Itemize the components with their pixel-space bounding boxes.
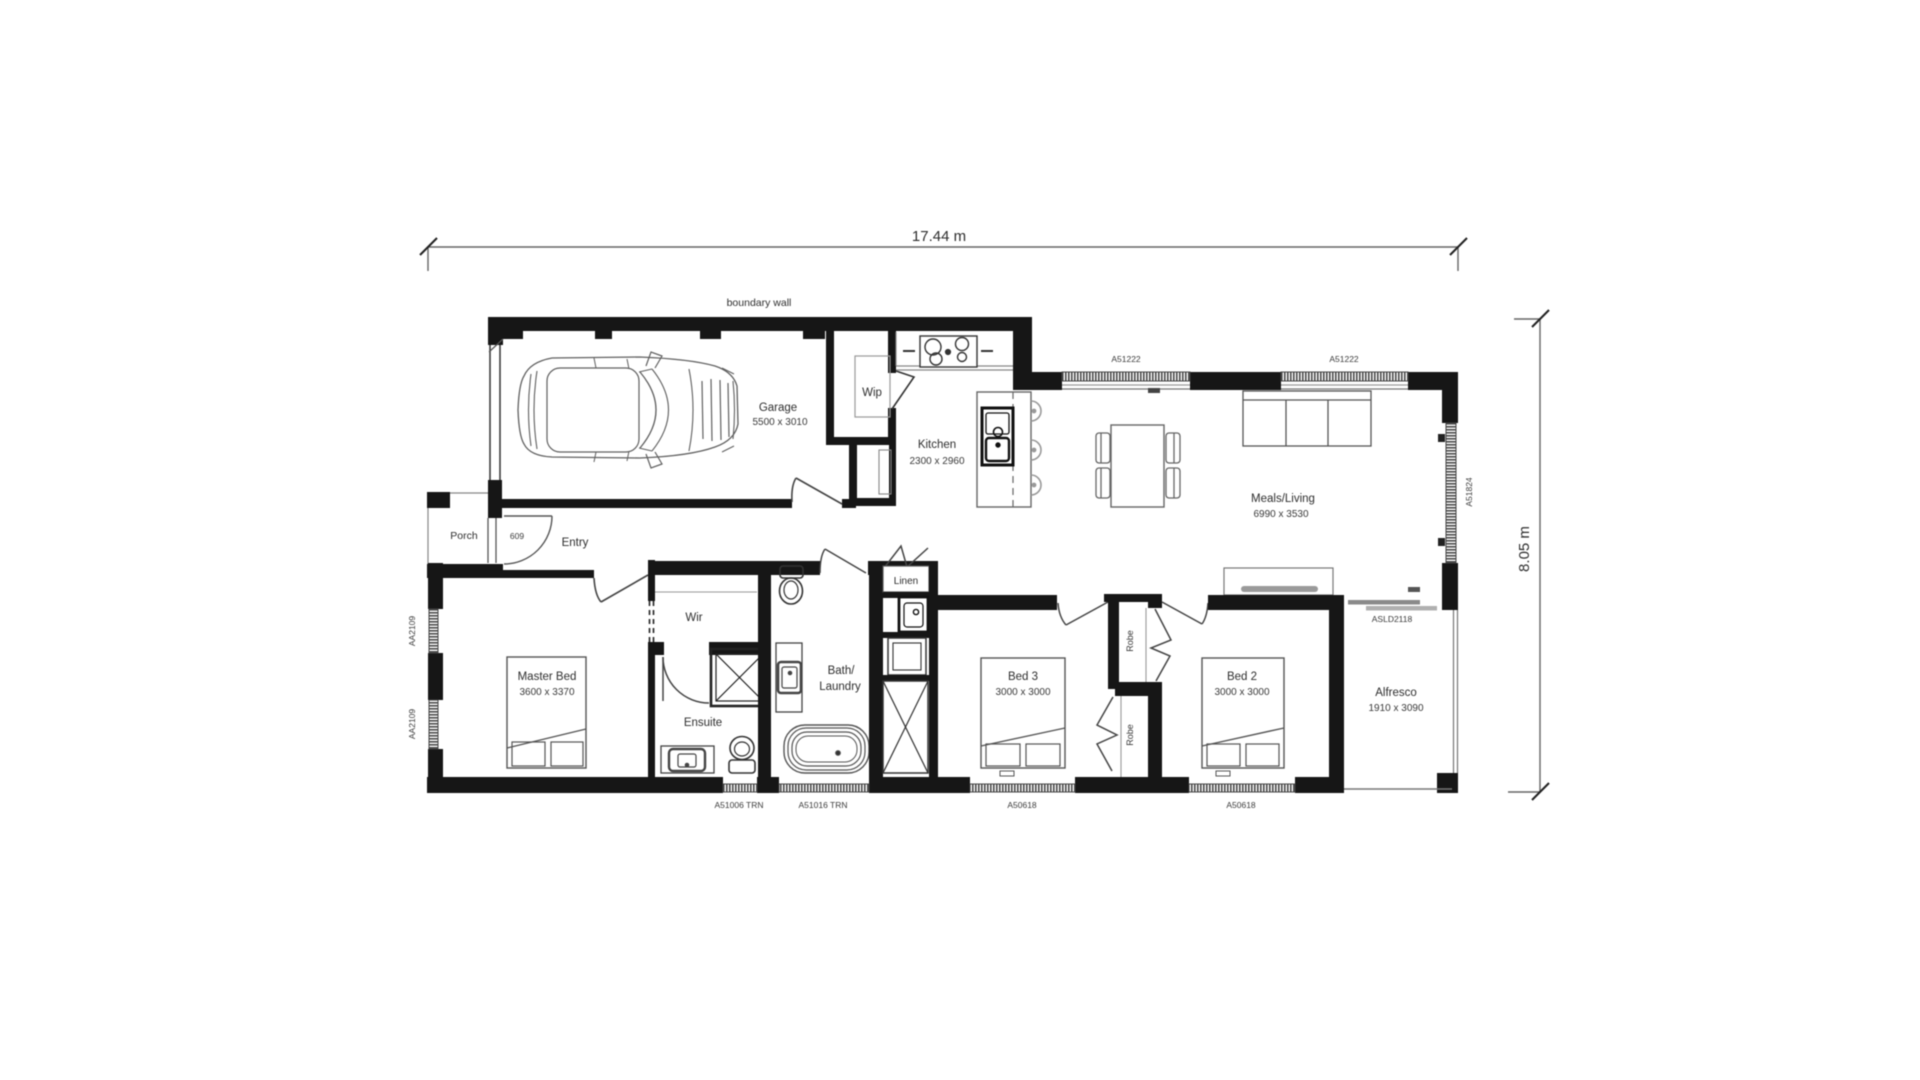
svg-text:A50618: A50618	[1007, 800, 1037, 810]
svg-text:A51222: A51222	[1111, 354, 1141, 364]
svg-text:Wip: Wip	[862, 387, 882, 399]
svg-text:Garage: Garage	[759, 402, 797, 414]
svg-text:3600 x 3370: 3600 x 3370	[519, 687, 574, 698]
svg-text:ASLD2118: ASLD2118	[1372, 614, 1413, 624]
svg-text:Bath/: Bath/	[828, 665, 856, 677]
svg-text:Entry: Entry	[562, 537, 589, 549]
svg-text:3000 x 3000: 3000 x 3000	[995, 687, 1050, 698]
svg-text:609: 609	[510, 531, 524, 541]
svg-text:6990 x 3530: 6990 x 3530	[1253, 509, 1308, 520]
svg-text:A51016 TRN: A51016 TRN	[799, 800, 848, 810]
svg-text:AA2109: AA2109	[407, 709, 417, 740]
svg-text:17.44 m: 17.44 m	[912, 228, 966, 245]
svg-text:AA2109: AA2109	[407, 616, 417, 647]
svg-text:8.05 m: 8.05 m	[1516, 526, 1533, 572]
svg-text:Linen: Linen	[894, 576, 918, 587]
svg-text:A51824: A51824	[1464, 477, 1474, 507]
svg-text:Porch: Porch	[450, 530, 478, 542]
svg-text:boundary wall: boundary wall	[727, 297, 792, 309]
svg-text:Robe: Robe	[1125, 630, 1135, 652]
svg-text:A50618: A50618	[1226, 800, 1256, 810]
svg-text:3000 x 3000: 3000 x 3000	[1214, 687, 1269, 698]
svg-text:5500 x 3010: 5500 x 3010	[752, 417, 807, 428]
svg-text:Laundry: Laundry	[819, 681, 861, 693]
svg-text:Bed 3: Bed 3	[1008, 671, 1038, 683]
svg-text:Wir: Wir	[685, 612, 702, 624]
svg-text:Alfresco: Alfresco	[1375, 687, 1417, 699]
svg-text:A51222: A51222	[1329, 354, 1359, 364]
svg-text:Ensuite: Ensuite	[684, 717, 722, 729]
svg-text:1910 x 3090: 1910 x 3090	[1368, 703, 1423, 714]
svg-text:Bed 2: Bed 2	[1227, 671, 1257, 683]
svg-text:Robe: Robe	[1125, 724, 1135, 746]
svg-text:Meals/Living: Meals/Living	[1251, 493, 1315, 505]
svg-text:Kitchen: Kitchen	[918, 439, 956, 451]
svg-text:Master Bed: Master Bed	[518, 671, 577, 683]
svg-text:2300 x 2960: 2300 x 2960	[909, 456, 964, 467]
svg-text:A51006 TRN: A51006 TRN	[715, 800, 764, 810]
